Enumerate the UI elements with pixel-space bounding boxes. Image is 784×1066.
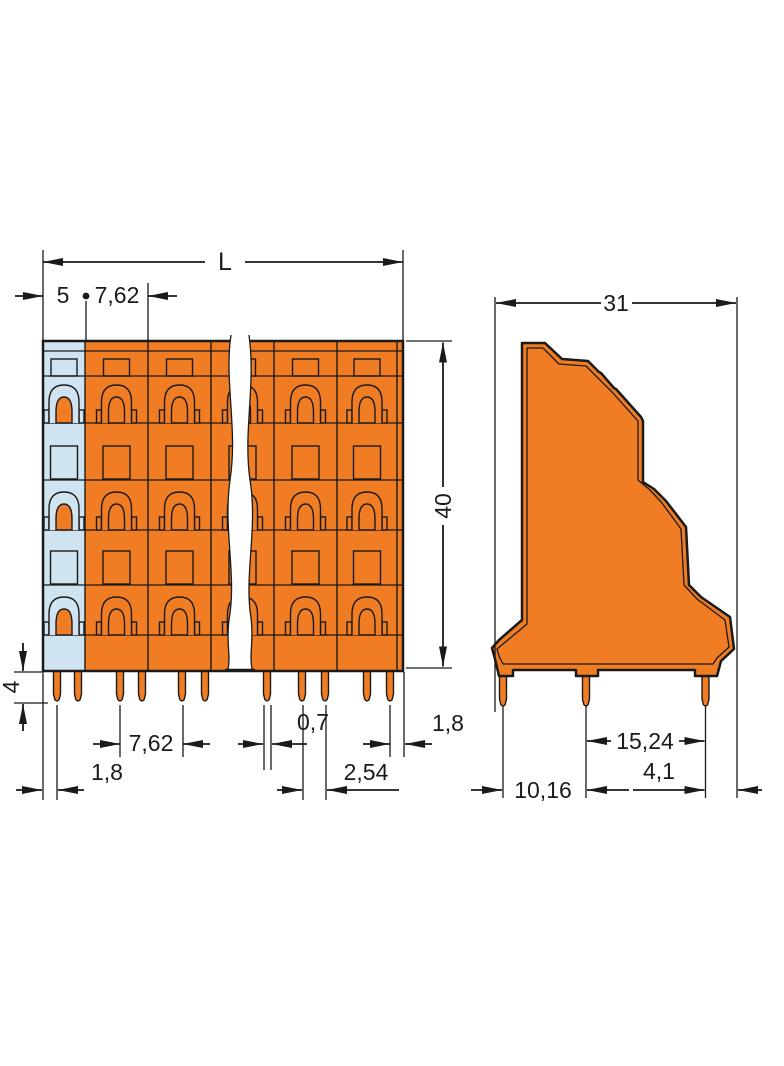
dim-pin-pitch: 7,62: [93, 705, 210, 757]
dim-first-pole-width-label: 5: [57, 282, 70, 308]
dim-reference-dot: [83, 293, 90, 300]
pin: [139, 671, 146, 701]
pin: [500, 676, 507, 706]
pin: [387, 671, 394, 701]
pin: [299, 671, 306, 701]
dim-left-edge-to-pin-label: 1,8: [91, 759, 123, 785]
dim-outer-pin-spacing-label: 15,24: [616, 728, 674, 754]
dim-outer-pin-spacing: 15,24: [586, 705, 706, 798]
pin: [117, 671, 124, 701]
pin: [202, 671, 209, 701]
dim-pin-pair-spacing: 2,54: [277, 705, 399, 800]
dim-pin-length: 4: [0, 643, 48, 731]
dim-first-pole-and-pitch: 5 7,62: [15, 282, 177, 340]
dim-pole-pitch-label: 7,62: [95, 282, 140, 308]
dim-overall-length-label: L: [218, 248, 232, 276]
front-solder-pins: [54, 671, 394, 701]
dim-pin-pair-spacing-label: 2,54: [344, 759, 389, 785]
dimensional-drawing: L 5 7,62 40 4: [0, 0, 784, 1066]
pin: [583, 676, 590, 706]
dim-right-edge-to-pin-label: 1,8: [432, 710, 464, 736]
pin: [702, 676, 709, 706]
pin: [75, 671, 82, 701]
dim-left-edge-to-pin: 1,8: [16, 672, 123, 800]
dim-pin-width: 0,7: [238, 705, 329, 770]
dim-height: 40: [406, 341, 456, 668]
dim-pin-pitch-label: 7,62: [129, 730, 174, 756]
pin: [364, 671, 371, 701]
pin: [179, 671, 186, 701]
front-view: L 5 7,62 40 4: [0, 248, 464, 800]
dim-inner-pin-spacing: 10,16: [471, 705, 629, 803]
break-line: [225, 335, 255, 670]
pin: [264, 671, 271, 701]
dim-pin-length-label: 4: [0, 680, 24, 693]
dim-pin-width-label: 0,7: [297, 709, 329, 735]
pin: [54, 671, 61, 701]
dim-pin-to-edge: 4,1: [633, 758, 762, 790]
dim-pin-to-edge-label: 4,1: [643, 758, 675, 784]
dim-inner-pin-spacing-label: 10,16: [514, 777, 572, 803]
dim-depth-label: 31: [603, 290, 629, 316]
side-view: 31 15,24 4,1 10,16: [471, 290, 762, 803]
side-solder-pins: [500, 676, 710, 706]
dim-height-label: 40: [430, 493, 456, 519]
pin: [322, 671, 329, 701]
dim-right-edge-to-pin: 1,8: [363, 672, 464, 757]
